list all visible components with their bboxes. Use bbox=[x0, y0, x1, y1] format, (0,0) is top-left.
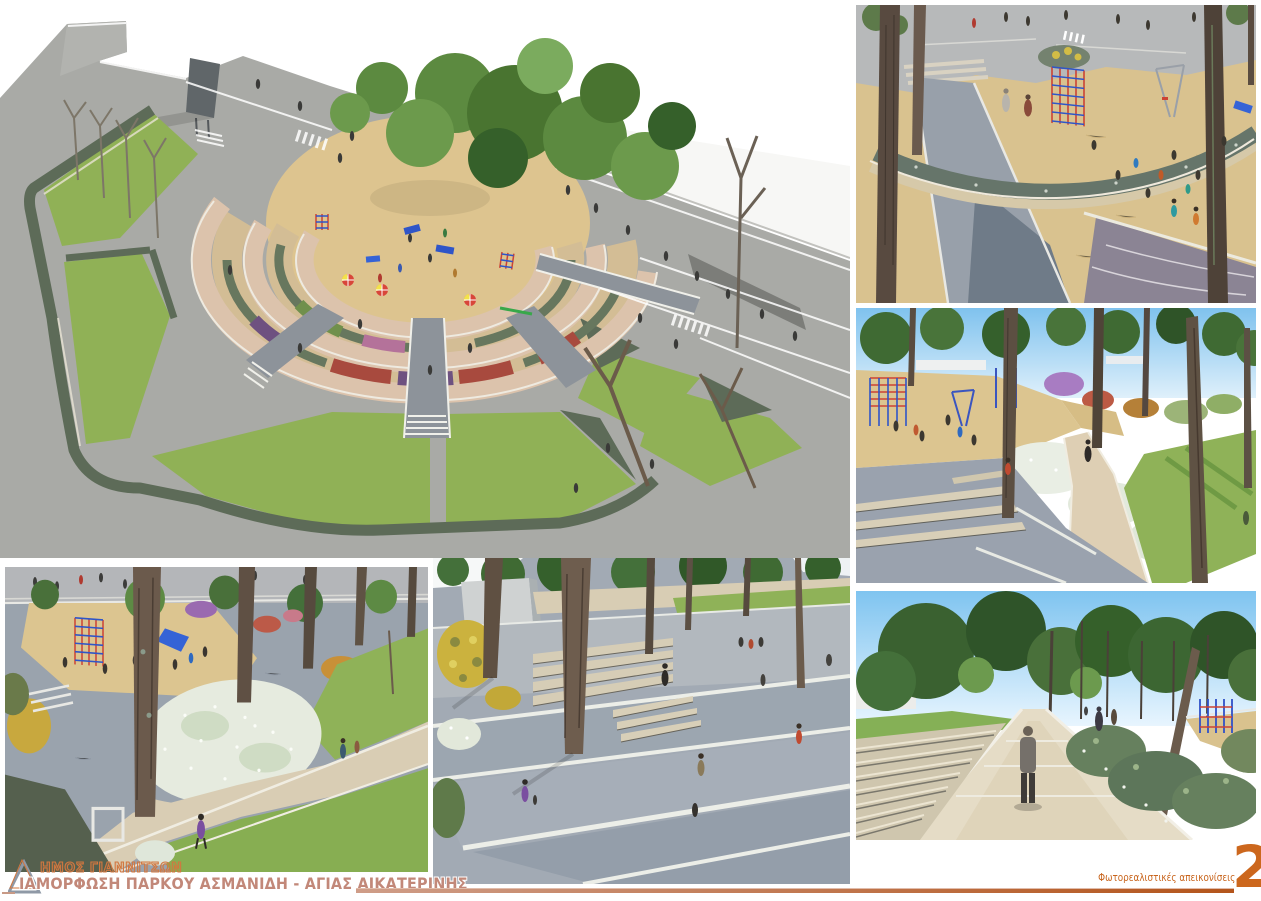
sheet-number: 2 bbox=[1232, 838, 1261, 896]
render-playground-path bbox=[856, 308, 1256, 583]
presentation-board: ΗΜΟΣ ΓΙΑΝΝΙΤΣΩΝ ΙΑΜΟΡΦΩΣΗ ΠΑΡΚΟΥ ΑΣΜΑΝΙΔ… bbox=[0, 0, 1261, 900]
render-aerial-overview bbox=[0, 18, 850, 558]
render-flower-meadow bbox=[5, 567, 428, 872]
render-playground-closeup bbox=[856, 5, 1256, 303]
footer-caption: Φωτορεαλιστικές απεικονίσεις bbox=[1098, 872, 1235, 884]
render-central-walkway bbox=[856, 591, 1256, 840]
render-terraced-plaza bbox=[433, 558, 850, 884]
footer-rule-logo-segment bbox=[2, 892, 15, 894]
footer-rule bbox=[356, 888, 1234, 893]
